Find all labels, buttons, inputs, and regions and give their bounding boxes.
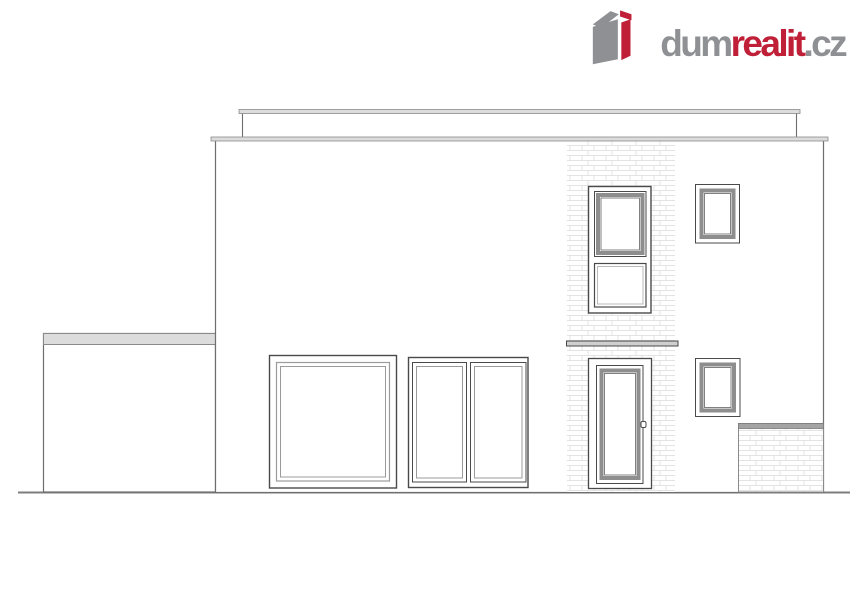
parapet-top-band [239, 110, 800, 114]
facade-top-band [211, 137, 828, 141]
lintel-band [567, 341, 679, 346]
window-frame [409, 358, 529, 488]
double-window [409, 358, 529, 488]
elevation-drawing-page: dumrealit.cz [0, 0, 861, 600]
small-window-upper-right [696, 185, 740, 244]
left-wall [44, 334, 216, 493]
roof-parapet [239, 110, 800, 139]
house-elevation-drawing: dumrealit.cz [0, 0, 861, 600]
upper-stacked-window [589, 187, 652, 314]
brick-base-block [739, 424, 824, 493]
lower-fixed-pane [595, 264, 647, 308]
window-frame [270, 356, 397, 489]
logo-text-realit: realit [731, 23, 804, 64]
small-window-lower-right [696, 359, 741, 417]
left-wall-coping [44, 334, 216, 345]
upper-sash-glazing-frame [598, 195, 643, 253]
large-window [270, 356, 397, 489]
logo-text-cz: .cz [803, 23, 845, 64]
dumrealit-logo-icon [587, 6, 649, 82]
brick-base-coping [739, 424, 824, 429]
glazing-frame [702, 365, 735, 411]
dumrealit-logo: dumrealit.cz [587, 6, 845, 82]
door-glass-frame [602, 371, 639, 479]
logo-wordmark: dumrealit.cz [660, 6, 845, 82]
door-handle [641, 422, 646, 428]
logo-text-dum: dum [660, 23, 730, 64]
entrance-door [589, 359, 652, 489]
glazing-frame [702, 191, 734, 238]
